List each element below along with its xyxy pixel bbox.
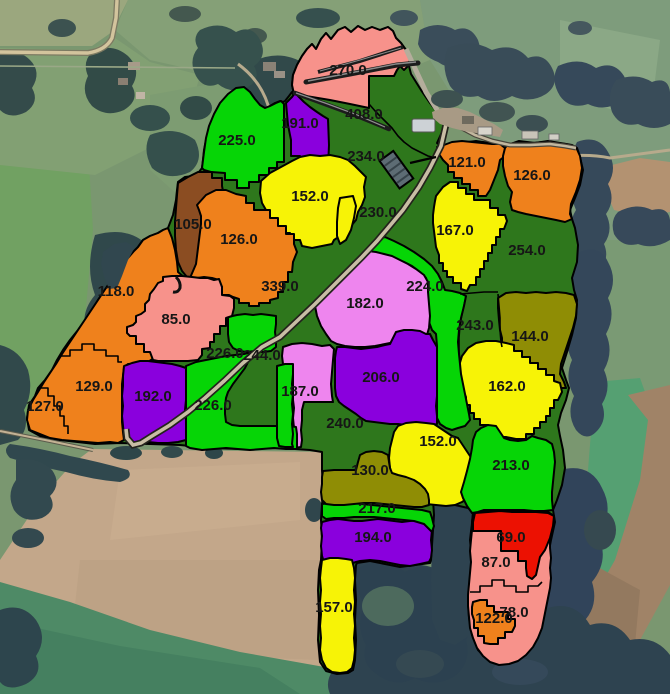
svg-text:192.0: 192.0: [134, 388, 172, 405]
svg-text:126.0: 126.0: [513, 167, 551, 184]
svg-text:240.0: 240.0: [326, 415, 364, 432]
svg-text:152.0: 152.0: [419, 433, 457, 450]
svg-text:87.0: 87.0: [481, 554, 510, 571]
svg-text:157.0: 157.0: [315, 599, 353, 616]
svg-text:130.0: 130.0: [351, 462, 389, 479]
svg-text:152.0: 152.0: [291, 188, 329, 205]
svg-text:122.0: 122.0: [475, 610, 513, 627]
svg-text:126.0: 126.0: [220, 231, 258, 248]
svg-text:121.0: 121.0: [448, 154, 486, 171]
svg-text:129.0: 129.0: [75, 378, 113, 395]
svg-text:69.0: 69.0: [496, 529, 525, 546]
svg-text:213.0: 213.0: [492, 457, 530, 474]
svg-text:118.0: 118.0: [98, 283, 135, 300]
svg-text:162.0: 162.0: [488, 378, 526, 395]
svg-text:270.0: 270.0: [329, 62, 367, 79]
svg-text:408.0: 408.0: [345, 106, 383, 123]
svg-text:339.0: 339.0: [261, 278, 299, 295]
svg-text:167.0: 167.0: [436, 222, 474, 239]
svg-text:243.0: 243.0: [456, 317, 494, 334]
svg-text:226.0: 226.0: [206, 345, 244, 362]
svg-text:225.0: 225.0: [218, 132, 256, 149]
svg-text:127.0: 127.0: [26, 398, 64, 415]
svg-text:206.0: 206.0: [362, 369, 400, 386]
svg-text:217.0: 217.0: [358, 500, 396, 517]
svg-text:182.0: 182.0: [346, 295, 384, 312]
svg-text:224.0: 224.0: [406, 278, 444, 295]
svg-text:144.0: 144.0: [511, 328, 549, 345]
svg-text:254.0: 254.0: [508, 242, 546, 259]
svg-text:194.0: 194.0: [354, 529, 392, 546]
svg-text:191.0: 191.0: [281, 115, 319, 132]
svg-text:234.0: 234.0: [347, 148, 385, 165]
svg-text:85.0: 85.0: [161, 311, 190, 328]
svg-text:105.0: 105.0: [174, 216, 212, 233]
svg-text:230.0: 230.0: [359, 204, 397, 221]
svg-text:226.0: 226.0: [194, 397, 232, 414]
svg-text:244.0: 244.0: [243, 347, 281, 364]
svg-text:187.0: 187.0: [281, 383, 319, 400]
